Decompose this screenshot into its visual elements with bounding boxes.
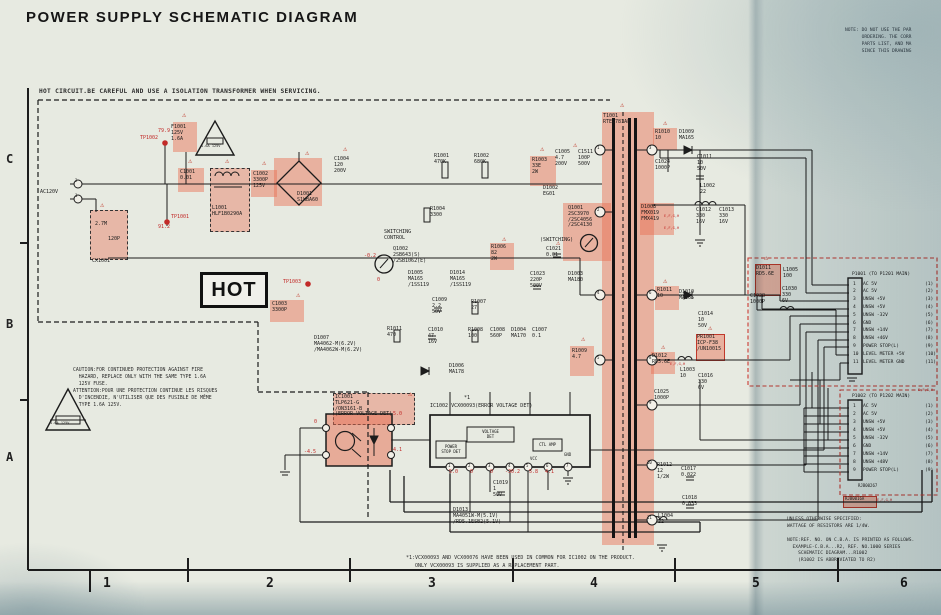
component-label: D1009 MA165	[679, 130, 694, 142]
component-label: D1005 MA165 /1SS119	[408, 271, 429, 288]
component-label: C1001 0.01	[180, 170, 195, 182]
component-label: 5.8	[529, 470, 538, 476]
component-label: 91.2	[158, 225, 170, 231]
warning-triangle-icon: ⚠	[663, 120, 667, 127]
grid-column-label: 1	[103, 576, 111, 591]
pin-number: 3	[853, 420, 863, 425]
warning-triangle-icon: ⚠	[620, 102, 624, 109]
warning-triangle-icon: ⚠	[305, 150, 309, 157]
grid-column-label: 4	[590, 576, 598, 591]
component-label: 5.0	[449, 470, 458, 476]
component-label: 2	[468, 464, 470, 469]
component-label: RJB00267	[858, 484, 877, 489]
pin-label: UNSW +14V	[863, 452, 925, 457]
pin-ref: (6)	[925, 444, 941, 449]
component-label: C1021 0.01	[546, 247, 561, 259]
pin-label: AC 5V	[863, 404, 925, 409]
component-label: 4.1	[393, 448, 402, 454]
pin-label: LEVEL METER +5V	[863, 352, 925, 357]
warning-triangle-icon: ⚠	[408, 391, 412, 398]
pin-ref: (4)	[925, 305, 941, 310]
ic1002-voltage-det-block: VOLTAGE DET	[467, 427, 514, 442]
pin-label: UNSW +46V	[863, 336, 925, 341]
pin-number: 4	[853, 305, 863, 310]
component-label: TP1002	[140, 136, 158, 142]
connector-pin-row: 6GND(6)	[853, 321, 941, 326]
component-label: C1013 330 16V	[719, 208, 734, 225]
component-label: L1001 HLF1B0290A	[212, 206, 242, 218]
component-label: 11	[647, 516, 652, 521]
connector-pin-row: 1AC 5V(1)	[853, 282, 941, 287]
component-label: SWITCHING CONTROL	[384, 230, 411, 242]
grid-column-label: 5	[752, 576, 760, 591]
component-label: 0	[490, 470, 493, 476]
pin-number: 10	[853, 352, 863, 357]
component-label: Q1002 2SB643(S) /2SB1062(E)	[393, 247, 426, 264]
component-label: Q1001 2SC3970 /2SC4056 /2SC4130	[568, 206, 592, 229]
connector-pin-row: 2AC 5V(2)	[853, 289, 941, 294]
component-label: 9	[649, 401, 651, 406]
component-label: -0.2	[364, 254, 376, 260]
schematic-notes: UNLESS OTHERWISE SPECIFIED: WATTAGE OF R…	[787, 517, 914, 565]
component-label: 2.7M	[95, 222, 107, 228]
pin-label: AC 5V	[863, 412, 925, 417]
component-label: C1023 220P 500V	[530, 272, 545, 289]
component-label: D1011 RD5.6E	[756, 266, 774, 278]
warning-triangle-icon: ⚠	[100, 202, 104, 209]
component-label: C1028 1000P	[750, 294, 765, 306]
component-label: TP1001	[171, 215, 189, 221]
component-label: 1.6A 125V	[201, 144, 220, 148]
connector-pin-row: 7UNSW +14V(7)	[853, 452, 941, 457]
component-label: R1004 3300	[430, 207, 445, 219]
component-label: C1012 330 16V	[696, 208, 711, 225]
component-label: E,F,G,H	[664, 214, 679, 218]
component-label: C1011 10 50V	[697, 155, 712, 172]
component-label: *1	[464, 396, 470, 402]
component-label: CX1001	[92, 259, 110, 265]
component-label: C1511 100P 500V	[578, 150, 593, 167]
pin-number: 4	[853, 428, 863, 433]
component-label: 4.1	[545, 470, 554, 476]
pin-label: POWER STOP(L)	[863, 344, 925, 349]
component-label: C1019 1 50V	[493, 481, 508, 498]
component-label: GND	[564, 453, 571, 458]
warning-triangle-icon: ⚠	[502, 236, 506, 243]
pin-number: 7	[853, 452, 863, 457]
component-label: L1002 22	[700, 184, 715, 196]
component-label: C1004 120 200V	[334, 157, 349, 174]
component-label: AC120V	[40, 190, 58, 196]
component-label: D1007 MA4062-M(6.2V) /MA4062W-M(6.2V)	[314, 336, 362, 353]
warning-triangle-icon: ⚠	[661, 344, 665, 351]
component-label: R1003 33E 2W	[532, 158, 547, 175]
connector-pin-row: 11LEVEL METER GND(11)	[853, 360, 941, 365]
component-label: D1001 S1WBA60	[297, 192, 318, 204]
pin-ref: (1)	[925, 404, 941, 409]
component-label: 0	[470, 470, 473, 476]
pin-label: GND	[863, 321, 925, 326]
component-label: 1	[597, 146, 599, 151]
component-label: D1004 MA170	[511, 328, 526, 340]
component-label: 3	[488, 464, 490, 469]
warning-triangle-icon: ⚠	[581, 336, 585, 343]
pin-number: 5	[853, 313, 863, 318]
pin-ref: (9)	[925, 344, 941, 349]
component-label: D1008 FMX019 FMX419	[641, 205, 659, 222]
pin-ref: (8)	[925, 336, 941, 341]
component-label: C1005 4.7 200V	[555, 150, 570, 167]
component-label: C1009 2.2 50V	[432, 298, 447, 315]
connector-pin-row: 8UNSW +48V(8)	[853, 460, 941, 465]
connector-pin-row: 2AC 5V(2)	[853, 412, 941, 417]
pin-number: 8	[853, 336, 863, 341]
warning-triangle-icon: ⚠	[296, 292, 300, 299]
connector-pin-row: 3UNSW +5V(3)	[853, 420, 941, 425]
component-label: R1001 470K	[434, 154, 449, 166]
warning-triangle-icon: ⚠	[343, 146, 347, 153]
connector-header: P1001 (TO P1201 MAIN)	[852, 272, 910, 277]
component-label: E,F,G,H	[918, 388, 933, 392]
component-label: C1002 3300P 125V	[253, 172, 268, 189]
component-label: PR1001 ICP-F38 /UN10015	[697, 335, 721, 352]
component-label: R1011 10	[657, 288, 672, 300]
component-label: L1004 22	[658, 514, 673, 526]
connector-pin-row: 9POWER STOP(L)(9)	[853, 344, 941, 349]
component-label: 120P	[108, 237, 120, 243]
pin-label: UNSW +5V	[863, 420, 925, 425]
component-label: IC1002 VCX00093(ERROR VOLTAGE DET)	[430, 404, 532, 410]
warning-triangle-icon: ⚠	[262, 160, 266, 167]
component-label: VCC	[530, 457, 537, 462]
component-label: 2	[75, 179, 77, 184]
pin-ref: (3)	[925, 420, 941, 425]
component-label: 4	[597, 291, 599, 296]
component-label: D1014 MA165 /1SS119	[450, 271, 471, 288]
component-label: E,F,G,H	[664, 226, 679, 230]
pin-label: UNSW +5V	[863, 428, 925, 433]
grid-column-label: 3	[428, 576, 436, 591]
pin-ref: (10)	[925, 352, 941, 357]
component-label: E,F,G,H	[670, 362, 685, 366]
connector-pin-row: 6GND(6)	[853, 444, 941, 449]
pin-ref: (6)	[925, 321, 941, 326]
pin-number: 9	[853, 344, 863, 349]
warning-triangle-icon: ⚠	[182, 112, 186, 119]
pin-label: AC 5V	[863, 282, 925, 287]
pin-label: UNSW -32V	[863, 313, 925, 318]
ic1002-power-stop-det-block: POWER STOP DET	[436, 441, 466, 458]
warning-triangle-icon: ⚠	[764, 255, 768, 262]
pin-number: 5	[853, 436, 863, 441]
corner-note: NOTE: DO NOT USE THE PAR ORDERING. THE C…	[845, 28, 911, 56]
pin-ref: (7)	[925, 452, 941, 457]
component-label: 0	[377, 278, 380, 284]
component-label: D1002 EG01	[543, 186, 558, 198]
hot-label: HOT	[200, 272, 268, 308]
component-label: RJB0016A	[845, 497, 864, 502]
component-label: D1012 RD5.6E	[652, 354, 670, 366]
pin-ref: (1)	[925, 282, 941, 287]
component-label: E,F,G,H	[877, 498, 892, 502]
grid-row-label: B	[6, 317, 13, 331]
pin-number: 2	[853, 412, 863, 417]
warning-triangle-icon: ⚠	[556, 240, 560, 247]
component-label: R1009 4.7	[572, 349, 587, 361]
pin-ref: (4)	[925, 428, 941, 433]
pin-label: UNSW +14V	[863, 328, 925, 333]
connector-pin-row: 4UNSW +5V(4)	[853, 305, 941, 310]
connector-pin-row: 8UNSW +46V(8)	[853, 336, 941, 341]
warning-triangle-icon: ⚠	[708, 325, 712, 332]
pin-number: 2	[853, 289, 863, 294]
connector-pin-row: 10LEVEL METER +5V(10)	[853, 352, 941, 357]
grid-column-label: 2	[266, 576, 274, 591]
pin-number: 6	[853, 321, 863, 326]
pin-ref: (7)	[925, 328, 941, 333]
component-label: R1012 12 1/2W	[657, 463, 672, 480]
ic1002-footnote: *1:VCX00093 AND VCX00076 HAVE BEEN USED …	[406, 555, 635, 570]
component-label: C1003 3300P	[272, 302, 287, 314]
component-label: D1010 MA165	[679, 290, 694, 302]
pin-ref: (2)	[925, 412, 941, 417]
warning-triangle-icon: ⚠	[540, 146, 544, 153]
component-label: L1005 100	[783, 268, 798, 280]
pin-ref: (2)	[925, 289, 941, 294]
component-label: 5	[526, 464, 528, 469]
component-label: R1007 27	[471, 300, 486, 312]
component-label: C1007 0.1	[532, 328, 547, 340]
schematic-page: POWER SUPPLY SCHEMATIC DIAGRAM NOTE: DO …	[0, 0, 941, 615]
component-label: R1006 82 2W	[491, 245, 506, 262]
pin-label: UNSW +5V	[863, 297, 925, 302]
component-label: 5.0	[393, 412, 402, 418]
pin-ref: (3)	[925, 297, 941, 302]
component-label: -4.5	[304, 450, 316, 456]
component-label: C1010 47 16V	[428, 328, 443, 345]
component-label: -30.2	[505, 470, 520, 476]
connector-pin-row: 5UNSW -32V(5)	[853, 313, 941, 318]
grid-row-label: A	[6, 450, 13, 464]
pin-number: 1	[853, 282, 863, 287]
component-label: R1011 470	[387, 327, 402, 339]
component-label: 79.9	[158, 129, 170, 135]
grid-column-label: 6	[900, 576, 908, 591]
pin-ref: (11)	[925, 360, 941, 365]
pin-number: 11	[853, 360, 863, 365]
pin-label: GND	[863, 444, 925, 449]
warning-triangle-icon: ⚠	[188, 158, 192, 165]
component-label: C1024 1000P	[655, 160, 670, 172]
pin-number: 8	[853, 460, 863, 465]
ic1002-ctl-amp-block: CTL AMP	[533, 439, 562, 451]
connector-pin-row: 4UNSW +5V(4)	[853, 428, 941, 433]
component-label: 1.6A 125V	[50, 421, 69, 425]
pin-label: AC 5V	[863, 289, 925, 294]
hot-circuit-warning: HOT CIRCUIT.BE CAREFUL AND USE A ISOLATI…	[39, 88, 321, 95]
pin-label: UNSW -32V	[863, 436, 925, 441]
component-label: C1008 560P	[490, 328, 505, 340]
component-label: L1003 10	[680, 368, 695, 380]
component-label: C1018 0.033	[682, 496, 697, 508]
component-label: C1016 330 6V	[698, 374, 713, 391]
pin-ref: (8)	[925, 460, 941, 465]
component-label: 3	[649, 146, 651, 151]
component-label: TP1003	[283, 280, 301, 286]
component-label: 7	[566, 464, 568, 469]
component-label: R1008 100	[468, 328, 483, 340]
pin-number: 9	[853, 468, 863, 473]
warning-triangle-icon: ⚠	[663, 278, 667, 285]
pin-label: LEVEL METER GND	[863, 360, 925, 365]
pin-ref: (5)	[925, 436, 941, 441]
component-label: 0	[314, 420, 317, 426]
pin-label: UNSW +5V	[863, 305, 925, 310]
component-label: 8	[649, 356, 651, 361]
component-label: D1013 MA4051W-M(5.1V) /RD5.1ESB2(5.1V)	[453, 508, 501, 525]
component-label: C1030 330 6V	[782, 287, 797, 304]
component-label: D1006 MA178	[449, 364, 464, 376]
pin-label: UNSW +48V	[863, 460, 925, 465]
component-label: T1001 RTE1781AF	[603, 114, 630, 126]
component-label: 1	[448, 464, 450, 469]
pin-label: POWER STOP(L)	[863, 468, 925, 473]
fuse-caution-note: CAUTION:FOR CONTINUED PROTECTION AGAINST…	[73, 368, 217, 410]
connector-pin-row: 1AC 5V(1)	[853, 404, 941, 409]
page-title: POWER SUPPLY SCHEMATIC DIAGRAM	[26, 9, 358, 26]
component-label: 10	[647, 461, 652, 466]
connector-header: P1002 (TO P1202 MAIN)	[852, 394, 910, 399]
warning-triangle-icon: ⚠	[573, 142, 577, 149]
component-label: 6	[546, 464, 548, 469]
component-label: IC1001 TLP621-G /ON3161-B (ERROR VOLTAGE…	[335, 395, 392, 418]
connector-pin-row: 3UNSW +5V(3)	[853, 297, 941, 302]
grid-row-label: C	[6, 152, 13, 166]
pin-ref: (5)	[925, 313, 941, 318]
component-label: C1017 0.022	[681, 467, 696, 479]
pin-ref: (9)	[925, 468, 941, 473]
component-label: R1002 680K	[474, 154, 489, 166]
component-label: 1	[75, 194, 77, 199]
connector-pin-row: 5UNSW -32V(5)	[853, 436, 941, 441]
component-label: D1003 MA180	[568, 272, 583, 284]
pin-number: 6	[853, 444, 863, 449]
component-label: 6	[649, 291, 651, 296]
pin-number: 7	[853, 328, 863, 333]
component-label: 2	[597, 208, 599, 213]
component-label: 4	[508, 464, 510, 469]
component-label: F1001 125V 1.6A	[171, 125, 186, 142]
component-label: R1010 10	[655, 130, 670, 142]
pin-number: 1	[853, 404, 863, 409]
connector-pin-row: 7UNSW +14V(7)	[853, 328, 941, 333]
pin-number: 3	[853, 297, 863, 302]
connector-pin-row: 9POWER STOP(L)(9)	[853, 468, 941, 473]
component-label: 5	[597, 356, 599, 361]
component-label: C1025 1000P	[654, 390, 669, 402]
warning-triangle-icon: ⚠	[225, 158, 229, 165]
